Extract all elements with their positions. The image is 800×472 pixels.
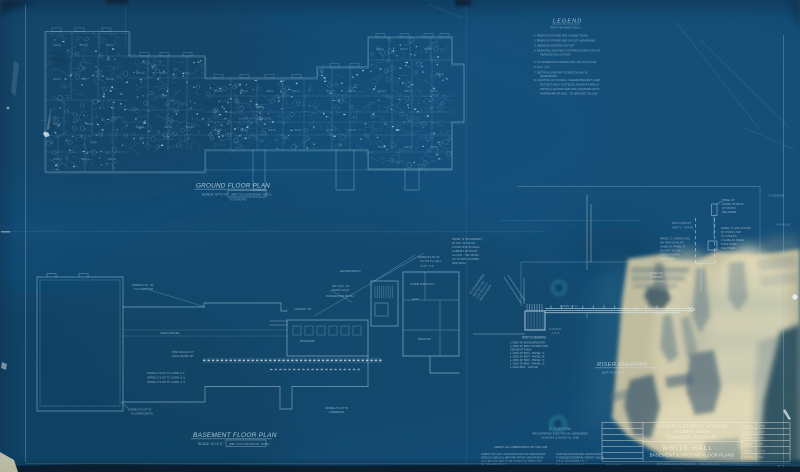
svg-text:1-100A BKR - HOUSE: 1-100A BKR - HOUSE	[510, 365, 538, 369]
svg-text:SPARE B.T.U. UP: SPARE B.T.U. UP	[132, 283, 154, 287]
svg-text:B.R.10: B.R.10	[53, 123, 61, 126]
svg-text:BOILER RM: BOILER RM	[300, 339, 316, 343]
svg-text:TRACED: TRACED	[744, 431, 754, 434]
svg-text:E.V.A.: E.V.A.	[758, 437, 765, 440]
svg-text:B.R.18: B.R.18	[214, 90, 222, 93]
svg-text:TUSKEGEE INSTITUTE: TUSKEGEE INSTITUTE	[667, 435, 717, 440]
svg-text:B.R.17: B.R.17	[430, 90, 438, 93]
svg-text:TRUNK ROOM 'B-2': TRUNK ROOM 'B-2'	[410, 282, 435, 286]
svg-text:LAUNDRY TR.: LAUNDRY TR.	[294, 307, 312, 311]
svg-text:SWITCHBOARD: SWITCHBOARD	[522, 336, 547, 340]
svg-text:AFF 1/2 C. TO: AFF 1/2 C. TO	[332, 284, 349, 288]
svg-text:B.R.15: B.R.15	[268, 129, 276, 132]
svg-text:BY STAIR 3 SIM.: BY STAIR 3 SIM.	[721, 230, 742, 234]
svg-text:B.R.11: B.R.11	[80, 44, 88, 47]
svg-text:B.R.11: B.R.11	[348, 129, 356, 132]
svg-text:B.R.12: B.R.12	[376, 48, 384, 51]
svg-text:R.W.T.: R.W.T.	[758, 431, 765, 434]
svg-text:STUDENT UNION: STUDENT UNION	[674, 429, 710, 434]
svg-text:NOTE USED: NOTE USED	[721, 242, 737, 246]
svg-text:B.R.16: B.R.16	[53, 78, 61, 81]
svg-text:B.R.12: B.R.12	[53, 158, 61, 161]
svg-text:8. LIGHTING OUT IN CELL, WHER: 8. LIGHTING OUT IN CELL, WHERE BRACKET L…	[534, 78, 601, 82]
svg-text:RISER DIAGRAM: RISER DIAGRAM	[597, 362, 647, 368]
svg-text:B.R.12: B.R.12	[436, 73, 444, 76]
svg-text:B.R.17: B.R.17	[81, 78, 89, 81]
svg-text:AT STAIR 3: AT STAIR 3	[722, 206, 736, 210]
svg-text:B.R.18: B.R.18	[378, 146, 386, 149]
svg-text:ABANDON OLD OUTLET: ABANDON OLD OUTLET	[540, 53, 571, 57]
svg-text:B.R.12: B.R.12	[292, 90, 300, 93]
svg-text:TO 1ST FL. HALL: TO 1ST FL. HALL	[420, 259, 442, 263]
svg-text:SPARE B LTS UP: SPARE B LTS UP	[418, 255, 440, 259]
svg-text:DETAILS (ARCH'L) BEFORE PIPING: DETAILS (ARCH'L) BEFORE PIPING, DEVIATIO…	[481, 455, 544, 459]
svg-text:B.R.11: B.R.11	[266, 90, 274, 93]
svg-text:(REF. TO FLOOR MOUNT. HGTS.): (REF. TO FLOOR MOUNT. HGTS.)	[231, 192, 272, 196]
svg-text:(REF. TO FLOOR MOUNT. HGTS.): (REF. TO FLOOR MOUNT. HGTS.)	[229, 442, 270, 446]
svg-text:SAME ROOM: SAME ROOM	[540, 74, 557, 78]
svg-text:B.R.14: B.R.14	[159, 72, 167, 75]
svg-text:B.R.17: B.R.17	[326, 90, 334, 93]
svg-text:5412: 5412	[758, 456, 764, 459]
svg-text:SPARE LTS UP TO CORR. B ②: SPARE LTS UP TO CORR. B ②	[147, 376, 186, 380]
svg-text:1. REMOVE FIXTURE AND CONNECT: 1. REMOVE FIXTURE AND CONNECTIONS	[534, 34, 588, 38]
svg-text:FACULTY & STUDENT HOUSING: FACULTY & STUDENT HOUSING	[657, 424, 728, 429]
svg-text:B.R.13: B.R.13	[81, 158, 89, 161]
svg-text:CHECK'D: CHECK'D	[744, 437, 755, 440]
svg-text:B.R.16: B.R.16	[404, 90, 412, 93]
svg-text:MENS RM: MENS RM	[418, 337, 431, 341]
svg-text:SCALE: ⅛"=1'-0": SCALE: ⅛"=1'-0"	[202, 193, 229, 197]
svg-text:5. TO INTERCOM CONTROL STA. O: 5. TO INTERCOM CONTROL STA. ON 1ST FLOOR	[534, 60, 596, 64]
svg-text:NOT TO SCALE: NOT TO SCALE	[602, 371, 624, 375]
svg-text:B.R.10: B.R.10	[326, 129, 334, 132]
svg-text:EMPTY - SPARE: EMPTY - SPARE	[672, 226, 693, 230]
svg-text:FLUORESCENTS: FLUORESCENTS	[131, 412, 153, 416]
svg-text:2. REMOVE FIXTURE AND OUTLET: 2. REMOVE FIXTURE AND OUTLET AND REPAIR	[534, 39, 595, 43]
svg-text:SEE RISER: SEE RISER	[650, 279, 665, 283]
svg-text:B.R.18: B.R.18	[348, 90, 356, 93]
svg-text:HIGH CRAWL SP.: HIGH CRAWL SP.	[172, 354, 194, 358]
svg-text:SPARE LTS UP TO CORR. A ①: SPARE LTS UP TO CORR. A ①	[147, 371, 186, 375]
svg-text:TUSKEGEE FEDERAL CREDIT UNION: TUSKEGEE FEDERAL CREDIT UNION	[556, 456, 604, 460]
svg-text:UNEXCAVATED: UNEXCAVATED	[160, 331, 180, 335]
svg-text:JOB NO: JOB NO	[744, 456, 753, 459]
svg-text:PANEL 'D' (2ND FLOOR): PANEL 'D' (2ND FLOOR)	[721, 226, 751, 230]
svg-text:PIPE SPACE 4'-0": PIPE SPACE 4'-0"	[172, 350, 194, 354]
svg-text:B.R.13: B.R.13	[400, 48, 408, 51]
svg-text:4TH HOUSE: 4TH HOUSE	[776, 224, 791, 227]
svg-text:CAPTAIN AUSTIN AND ASSOCIATES: CAPTAIN AUSTIN AND ASSOCIATES	[556, 452, 602, 456]
svg-text:DATE: DATE	[744, 450, 751, 453]
svg-text:HEATER RM B-3: HEATER RM B-3	[340, 269, 361, 273]
svg-text:SEE RISER: SEE RISER	[722, 210, 736, 214]
svg-text:SEE RISER: SEE RISER	[660, 257, 675, 261]
svg-text:1/8": 1/8"	[758, 443, 762, 446]
svg-text:+9'-8" -7'-2": +9'-8" -7'-2"	[420, 264, 434, 268]
svg-text:W.H.H.: W.H.H.	[758, 425, 766, 428]
svg-text:CORRIDOR: CORRIDOR	[329, 410, 344, 414]
svg-text:SEE SPEC.: SEE SPEC.	[452, 261, 467, 265]
svg-text:7. SECTION LIGHTING TO SWITCH: 7. SECTION LIGHTING TO SWITCH PNL IN	[534, 71, 587, 75]
svg-text:3. ABANDON EXISTING OUTLET: 3. ABANDON EXISTING OUTLET	[534, 44, 575, 48]
svg-text:WHITE HALL: WHITE HALL	[662, 446, 713, 452]
svg-text:SCALE: ⅛"=1'-0": SCALE: ⅛"=1'-0"	[198, 442, 224, 446]
svg-text:“C” GROUND: “C” GROUND	[768, 194, 784, 198]
svg-text:GROUND FLOOR PLAN: GROUND FLOOR PLAN	[196, 183, 270, 190]
svg-text:B.R.14: B.R.14	[240, 129, 248, 132]
svg-text:B.R.13: B.R.13	[214, 129, 222, 132]
svg-text:VERIFY ALL DIMENSIONS ON THE J: VERIFY ALL DIMENSIONS ON THE JOB	[494, 445, 547, 449]
svg-text:B.R.15: B.R.15	[378, 90, 386, 93]
svg-text:IN END OF BLDG: IN END OF BLDG	[722, 202, 744, 206]
svg-text:DOWN LIGHT: DOWN LIGHT	[332, 288, 350, 292]
svg-text:B.R.16: B.R.16	[164, 126, 172, 129]
svg-text:B.R.10: B.R.10	[404, 146, 412, 149]
svg-text:CHECK OUTLET LOCATIONS WITH OT: CHECK OUTLET LOCATIONS WITH OTHER PLANS	[481, 452, 545, 456]
svg-text:x 4'-0": x 4'-0"	[552, 331, 560, 335]
svg-text:B.R.10: B.R.10	[240, 90, 248, 93]
svg-text:B.R.11: B.R.11	[86, 123, 94, 126]
svg-text:SPARE LTS UP TO CORR. C ③: SPARE LTS UP TO CORR. C ③	[147, 380, 186, 384]
svg-text:(FOR THIS SHEET ONLY): (FOR THIS SHEET ONLY)	[550, 26, 581, 30]
svg-text:B.R.14: B.R.14	[424, 48, 432, 51]
svg-text:TO OTHERS: TO OTHERS	[721, 234, 737, 238]
svg-text:2 SAME AS PANEL: 2 SAME AS PANEL	[721, 238, 745, 242]
svg-text:6. A.F.F. 1'-6": 6. A.F.F. 1'-6"	[534, 65, 550, 69]
svg-text:INCINERATOR RM B-1: INCINERATOR RM B-1	[326, 294, 355, 298]
svg-text:SCALE: SCALE	[744, 443, 752, 446]
svg-text:PANEL 'D': PANEL 'D'	[722, 198, 735, 202]
svg-text:ALABAMA LICENSE No. 2085: ALABAMA LICENSE No. 2085	[541, 436, 579, 440]
svg-text:B.R.11: B.R.11	[430, 146, 438, 149]
svg-text:OUTLETS ONLY IN STENCIL PLANS: OUTLETS ONLY IN STENCIL PLANS AT WALLS	[540, 83, 599, 87]
svg-text:BASEMENT & GROUND FLOOR PLAN: BASEMENT & GROUND FLOOR PLANS	[650, 453, 735, 458]
svg-text:DRAWN: DRAWN	[744, 425, 753, 428]
svg-text:SPARE LTS UP TO: SPARE LTS UP TO	[128, 408, 151, 412]
svg-text:B.R.15: B.R.15	[182, 72, 190, 75]
svg-text:B.R.13: B.R.13	[136, 72, 144, 75]
svg-text:B.R.17: B.R.17	[186, 126, 194, 129]
svg-text:4. REINSTALL EXISTING FIXTURE: 4. REINSTALL EXISTING FIXTURE ON NEW CIR…	[534, 49, 601, 53]
svg-text:INSTALL LIGHTING AND WALL BLAN: INSTALL LIGHTING AND WALL BLANKED UNTIL	[540, 87, 600, 91]
svg-text:SEE RISER: SEE RISER	[721, 246, 735, 250]
svg-text:BASEMENT FLOOR PLAN: BASEMENT FLOOR PLAN	[193, 432, 277, 439]
svg-text:B.R.13: B.R.13	[256, 106, 264, 109]
svg-text:B.R.16: B.R.16	[294, 129, 302, 132]
svg-text:B.R.18: B.R.18	[106, 78, 114, 81]
svg-text:6-1-54: 6-1-54	[758, 450, 766, 453]
svg-text:TO CORRIDOR: TO CORRIDOR	[134, 287, 153, 291]
svg-text:B.R.14: B.R.14	[108, 158, 116, 161]
svg-text:B.R.15: B.R.15	[136, 126, 144, 129]
svg-text:+9'-8": +9'-8"	[412, 297, 419, 301]
svg-text:LEGEND: LEGEND	[553, 19, 582, 25]
svg-text:SPARE LTS UP TO: SPARE LTS UP TO	[325, 406, 348, 410]
svg-text:1 RUN - 2" C.: 1 RUN - 2" C.	[560, 304, 578, 308]
svg-text:3RD CONDUIT: 3RD CONDUIT	[672, 221, 691, 225]
svg-text:HARDWARE UP WALL, TO BRACKET O: HARDWARE UP WALL, TO BRACKET ON JAM	[540, 92, 598, 96]
svg-text:AS STANDARD: AS STANDARD	[230, 199, 247, 202]
svg-text:C O R R I D O R (SEE NOTE): C O R R I D O R (SEE NOTE)	[239, 118, 271, 121]
svg-text:B.R.10: B.R.10	[53, 44, 61, 47]
svg-text:B.R.12: B.R.12	[106, 44, 114, 47]
